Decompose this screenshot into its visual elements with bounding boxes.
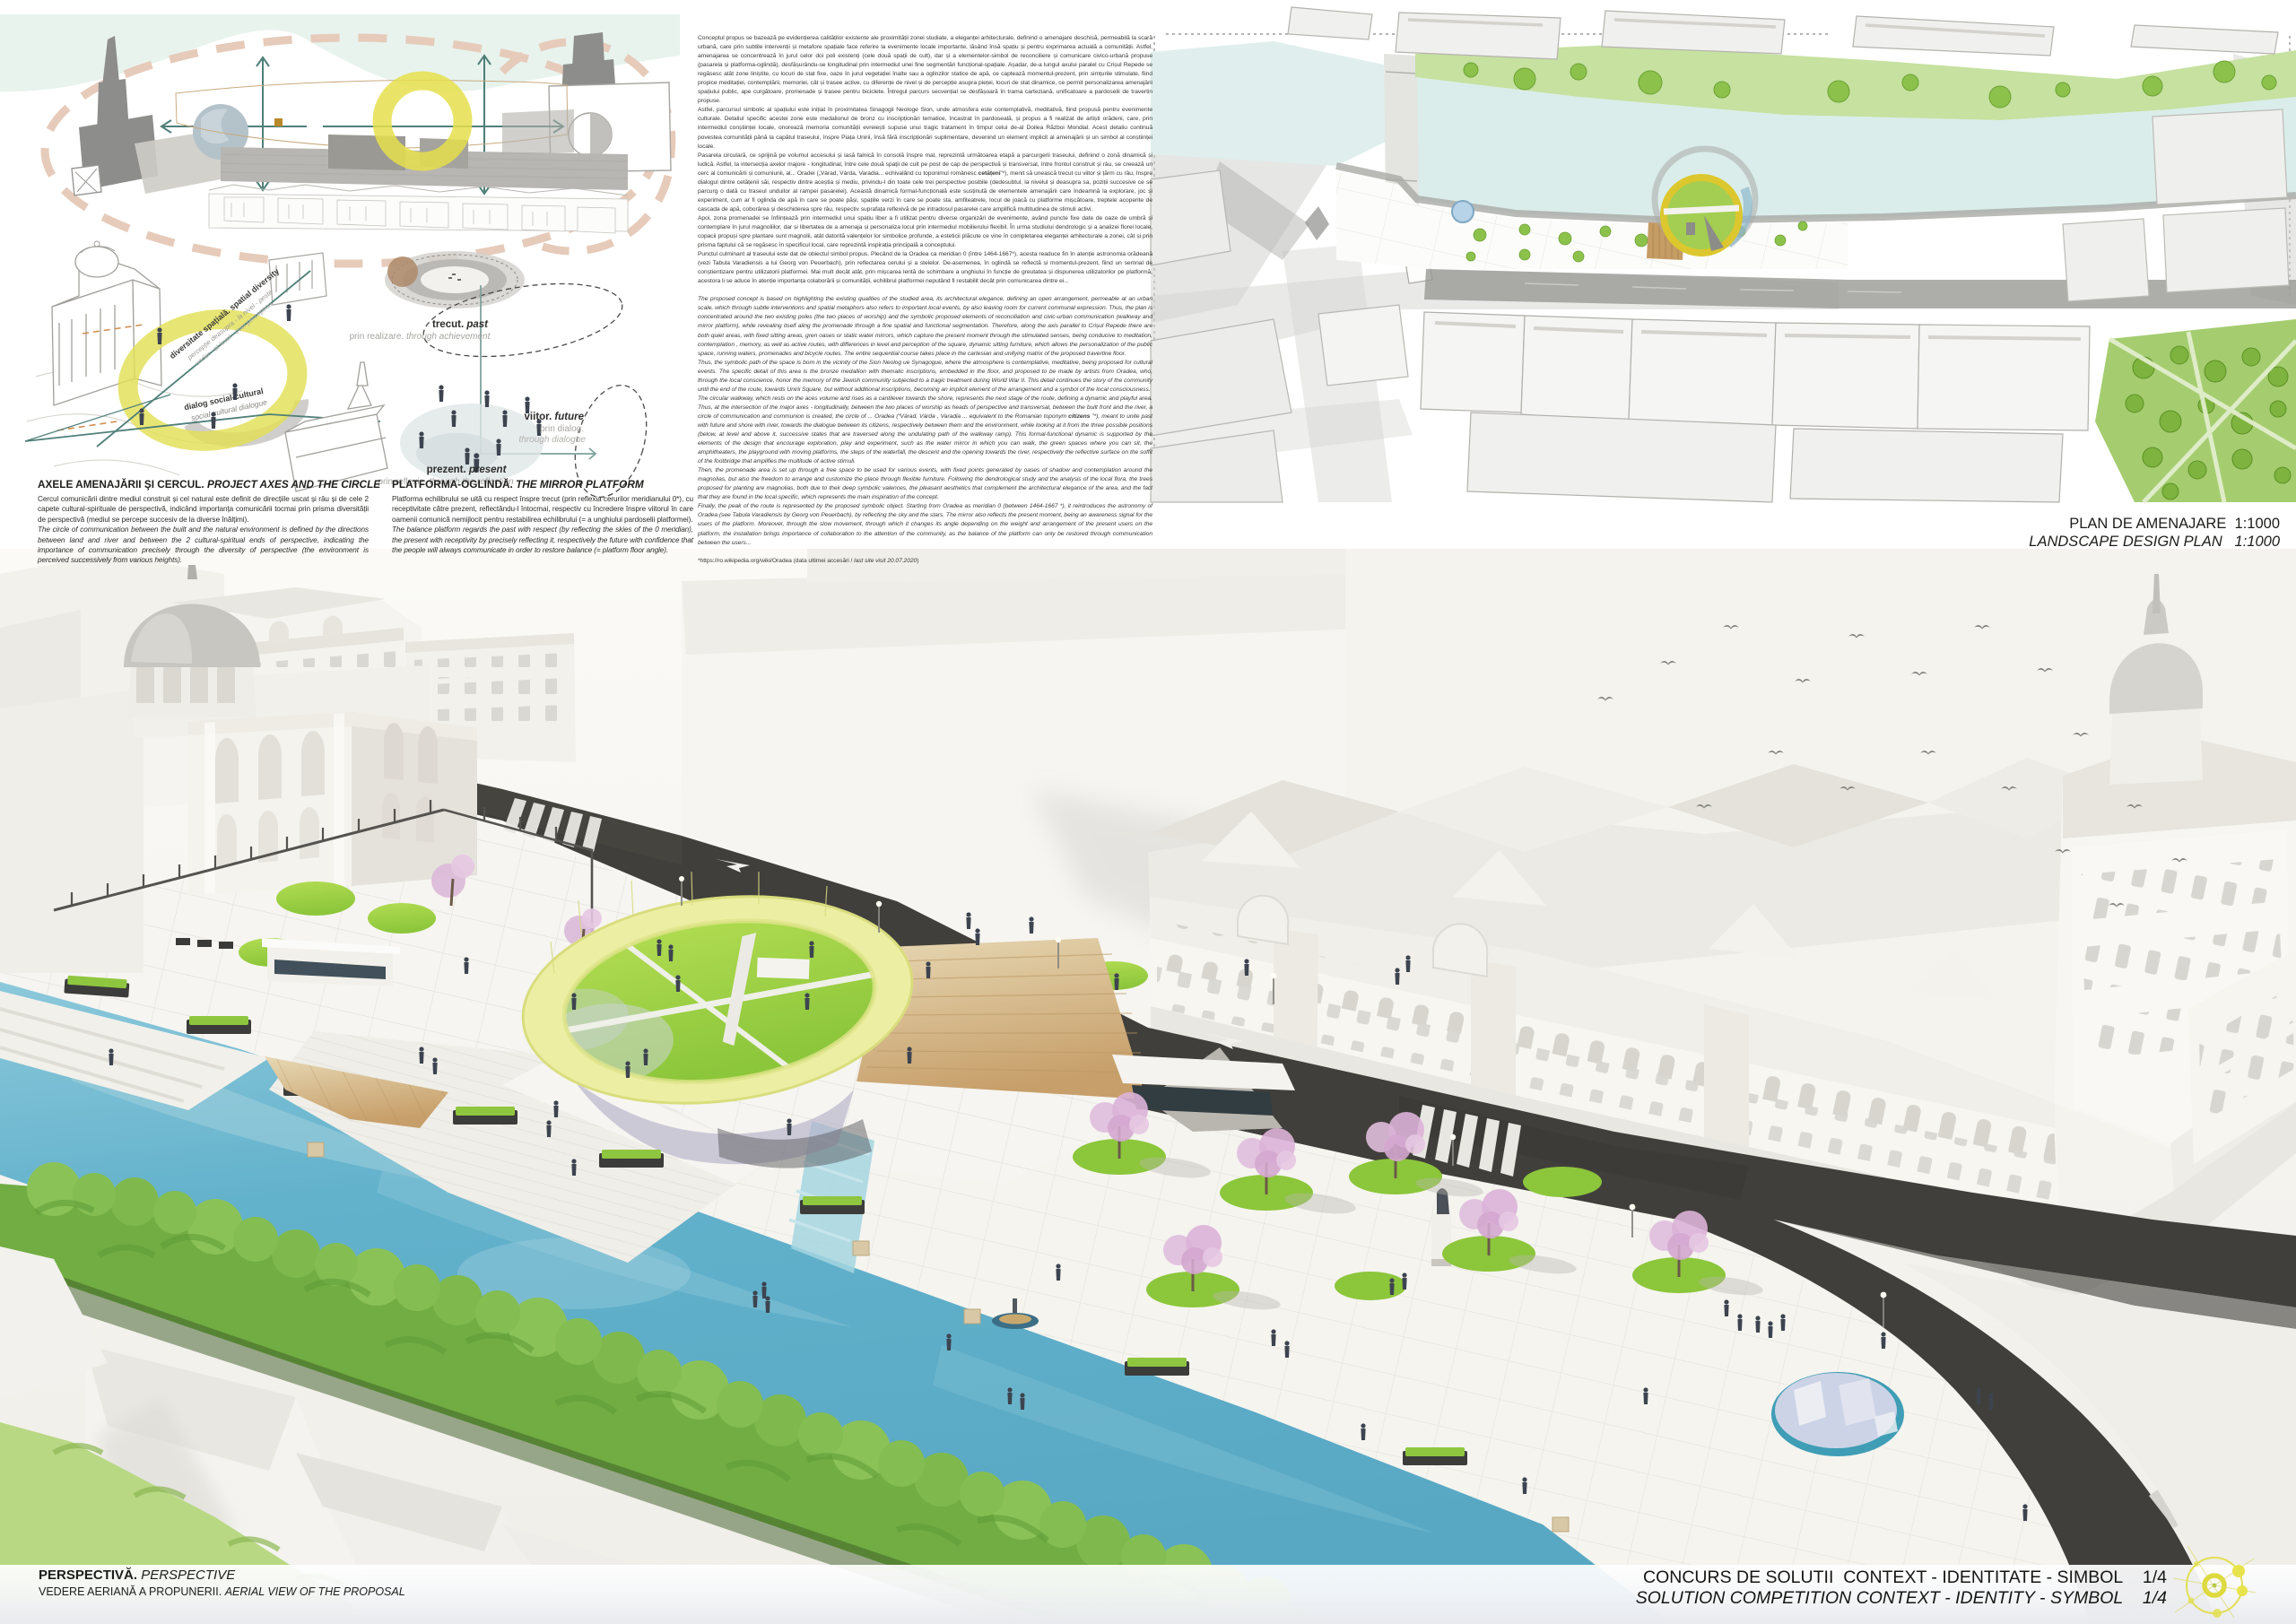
svg-text:viitor. future: viitor. future bbox=[525, 412, 585, 422]
svg-text:trecut. past: trecut. past bbox=[432, 319, 489, 330]
svg-text:prezent. present: prezent. present bbox=[427, 465, 508, 475]
svg-text:prin realizare. through achiev: prin realizare. through achievement bbox=[350, 332, 491, 342]
svg-text:through dialogue: through dialogue bbox=[518, 435, 586, 445]
svg-text:prin dialog.: prin dialog. bbox=[540, 424, 584, 434]
